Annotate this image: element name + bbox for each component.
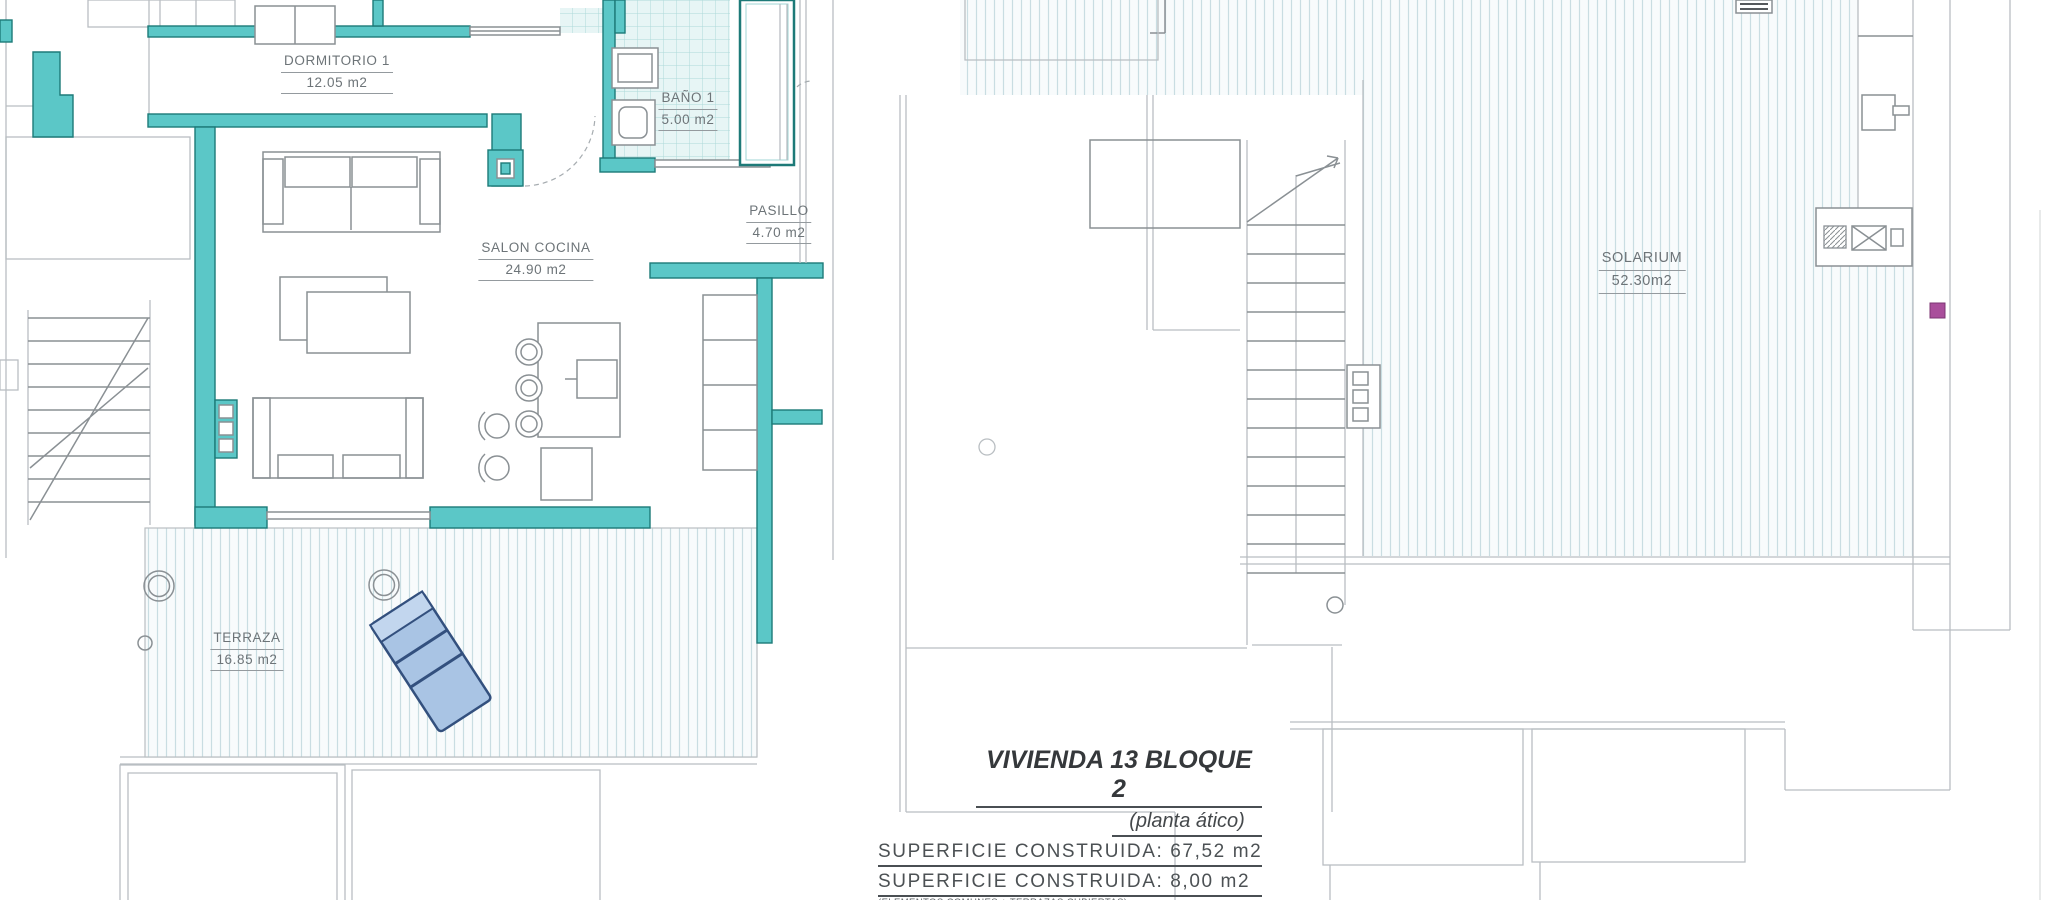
wall-panel [215, 400, 237, 458]
room-label-dormitorio: DORMITORIO 1 12.05 m2 [281, 51, 393, 94]
room-name: SOLARIUM [1599, 248, 1686, 271]
direction-arrow [1247, 156, 1340, 222]
room-label-pasillo: PASILLO 4.70 m2 [746, 201, 811, 244]
door-swing-arc [525, 116, 595, 186]
superficie-construida-1: SUPERFICIE CONSTRUIDA: 67,52 m2 [878, 841, 1262, 867]
wardrobe [255, 6, 335, 44]
vent-box [1736, 0, 1772, 13]
kitchen-island [516, 323, 620, 437]
room-label-terraza: TERRAZA 16.85 m2 [210, 628, 283, 671]
floor-plan-document: DORMITORIO 1 12.05 m2 BAÑO 1 5.00 m2 PAS… [0, 0, 2048, 900]
sofa-bottom [253, 398, 423, 478]
room-area: 4.70 m2 [746, 223, 811, 245]
kitchen-counter [703, 295, 757, 470]
toilet [612, 100, 655, 145]
plan-subtitle: (planta ático) [1112, 810, 1262, 837]
room-area: 12.05 m2 [281, 73, 393, 95]
left-stairs [28, 300, 150, 525]
room-name: DORMITORIO 1 [281, 51, 393, 73]
switch-panel [1347, 365, 1380, 428]
title-block: VIVIENDA 13 BLOQUE 2 (planta ático) SUPE… [878, 746, 1262, 900]
coffee-table [280, 277, 410, 353]
room-name: BAÑO 1 [658, 88, 717, 110]
sofa-top [263, 152, 440, 232]
newel [1327, 597, 1343, 613]
room-name: TERRAZA [210, 628, 283, 650]
room-label-salon-cocina: SALON COCINA 24.90 m2 [478, 238, 593, 281]
room-area: 24.90 m2 [478, 260, 593, 282]
room-area: 5.00 m2 [658, 110, 717, 132]
ac-unit [1862, 95, 1895, 130]
left-plan [0, 0, 833, 900]
room-label-bano: BAÑO 1 5.00 m2 [658, 88, 717, 131]
column [488, 150, 523, 186]
room-name: SALON COCINA [478, 238, 593, 260]
room-area: 52.30m2 [1599, 271, 1686, 294]
superficie-construida-2: SUPERFICIE CONSTRUIDA: 8,00 m2 [878, 871, 1262, 897]
plan-title: VIVIENDA 13 BLOQUE 2 [976, 746, 1262, 808]
solarium-deck-band [960, 0, 1363, 95]
shower [740, 0, 794, 165]
room-area: 16.85 m2 [210, 650, 283, 672]
room-label-solarium: SOLARIUM 52.30m2 [1599, 248, 1686, 294]
right-stairs [1247, 140, 1345, 812]
equipment-box [1816, 208, 1912, 266]
bathroom-sink [612, 48, 658, 88]
magenta-marker [1930, 303, 1945, 318]
room-name: PASILLO [746, 201, 811, 223]
